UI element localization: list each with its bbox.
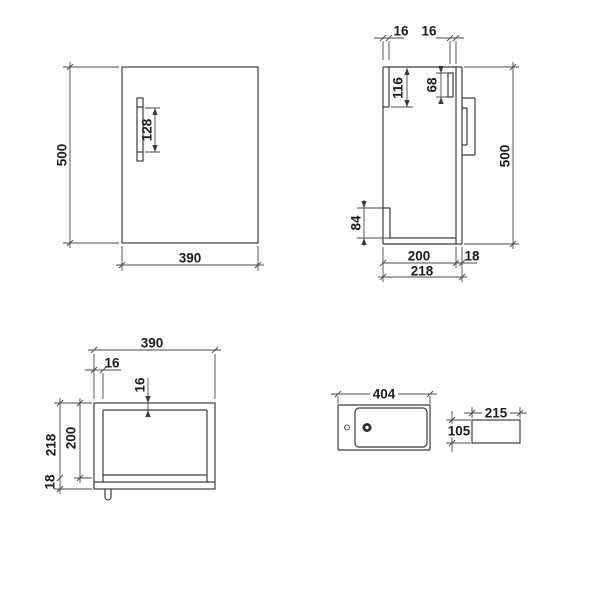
back-panel [383, 67, 390, 238]
door-thickness-label: 18 [464, 249, 480, 264]
dim-front-height: 500 [55, 62, 120, 248]
front-view: 500 390 128 [55, 62, 265, 271]
dim-plan-side-wall: 16 [85, 356, 121, 400]
vanity-dimension-drawing: 500 390 128 16 16 [0, 0, 600, 600]
dim-back-thickness: 16 [374, 24, 409, 61]
dim-plan-depths: 218 200 18 [43, 398, 93, 494]
dim-front-width: 390 [116, 246, 264, 271]
basin-side-height-label: 105 [448, 424, 471, 439]
plan-total-depth-label: 218 [44, 433, 59, 456]
basin-width-label: 404 [373, 387, 396, 402]
dim-side-depths: 200 18 218 [378, 247, 480, 282]
door-handle-side [462, 98, 475, 155]
dim-handle-plate: 68 [425, 66, 449, 104]
bottom-notch-label: 84 [349, 215, 364, 231]
cabinet-plan-walls [94, 410, 215, 482]
dim-basin-side-width: 215 [464, 406, 527, 421]
basin-outline [338, 405, 430, 450]
handle-mount-plate [448, 73, 453, 97]
front-height-label: 500 [55, 144, 70, 167]
technical-drawing-canvas: 500 390 128 16 16 [0, 0, 600, 600]
basin-side-view: 215 105 [446, 406, 527, 453]
basin-side-width-label: 215 [485, 406, 508, 421]
handle-length-label: 128 [140, 118, 155, 141]
front-thickness-label: 16 [421, 24, 437, 39]
plan-body-depth-label: 200 [64, 427, 79, 450]
cabinet-front-outline [122, 67, 258, 243]
front-width-label: 390 [179, 251, 202, 266]
handle-plate-label: 68 [425, 77, 440, 93]
plan-width-label: 390 [141, 336, 164, 351]
dim-basin-side-height: 105 [446, 411, 471, 452]
dim-front-thickness: 16 [421, 24, 464, 65]
dim-basin-width: 404 [331, 387, 437, 405]
tap-hole [345, 425, 350, 430]
drain-hole-center [365, 426, 368, 429]
total-depth-label: 218 [411, 264, 434, 279]
basin-top-view: 404 [331, 387, 437, 451]
back-cutout-label: 116 [391, 77, 406, 99]
plan-side-wall-label: 16 [104, 356, 120, 371]
dim-plan-back-wall: 16 [133, 377, 151, 417]
dim-back-cutout: 116 [391, 68, 414, 107]
back-thickness-label: 16 [393, 24, 409, 39]
cabinet-plan-outline [94, 403, 215, 489]
side-height-label: 500 [498, 145, 513, 168]
plan-back-wall-label: 16 [133, 377, 148, 393]
body-depth-label: 200 [408, 249, 431, 264]
plan-door-label: 18 [43, 474, 58, 490]
door-handle-plan [105, 489, 111, 500]
side-view: 16 16 116 68 84 [349, 24, 520, 283]
plan-view: 390 16 16 218 200 18 [43, 336, 222, 501]
basin-side-outline [472, 420, 520, 443]
